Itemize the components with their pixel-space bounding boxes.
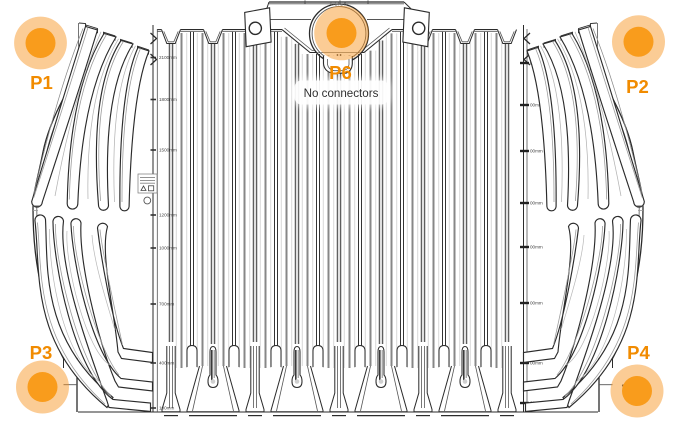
svg-text:100mm: 100mm [159,406,174,411]
svg-text:00mm: 00mm [530,201,543,206]
svg-text:No connectors: No connectors [304,87,379,100]
svg-text:P4: P4 [627,342,650,363]
svg-text:1000mm: 1000mm [159,246,177,251]
svg-text:2100mm: 2100mm [159,55,177,60]
svg-text:1500mm: 1500mm [159,148,177,153]
svg-text:P6: P6 [329,62,352,83]
svg-text:1800mm: 1800mm [159,97,177,102]
svg-text:00mm: 00mm [530,245,543,250]
svg-text:P1: P1 [30,72,53,93]
svg-text:400mm: 400mm [159,361,174,366]
svg-text:700mm: 700mm [159,302,174,307]
svg-text:00mm: 00mm [530,301,543,306]
svg-text:P2: P2 [626,76,649,97]
svg-text:1200mm: 1200mm [159,213,177,218]
svg-text:P3: P3 [30,342,53,363]
svg-text:00mm: 00mm [530,149,543,154]
